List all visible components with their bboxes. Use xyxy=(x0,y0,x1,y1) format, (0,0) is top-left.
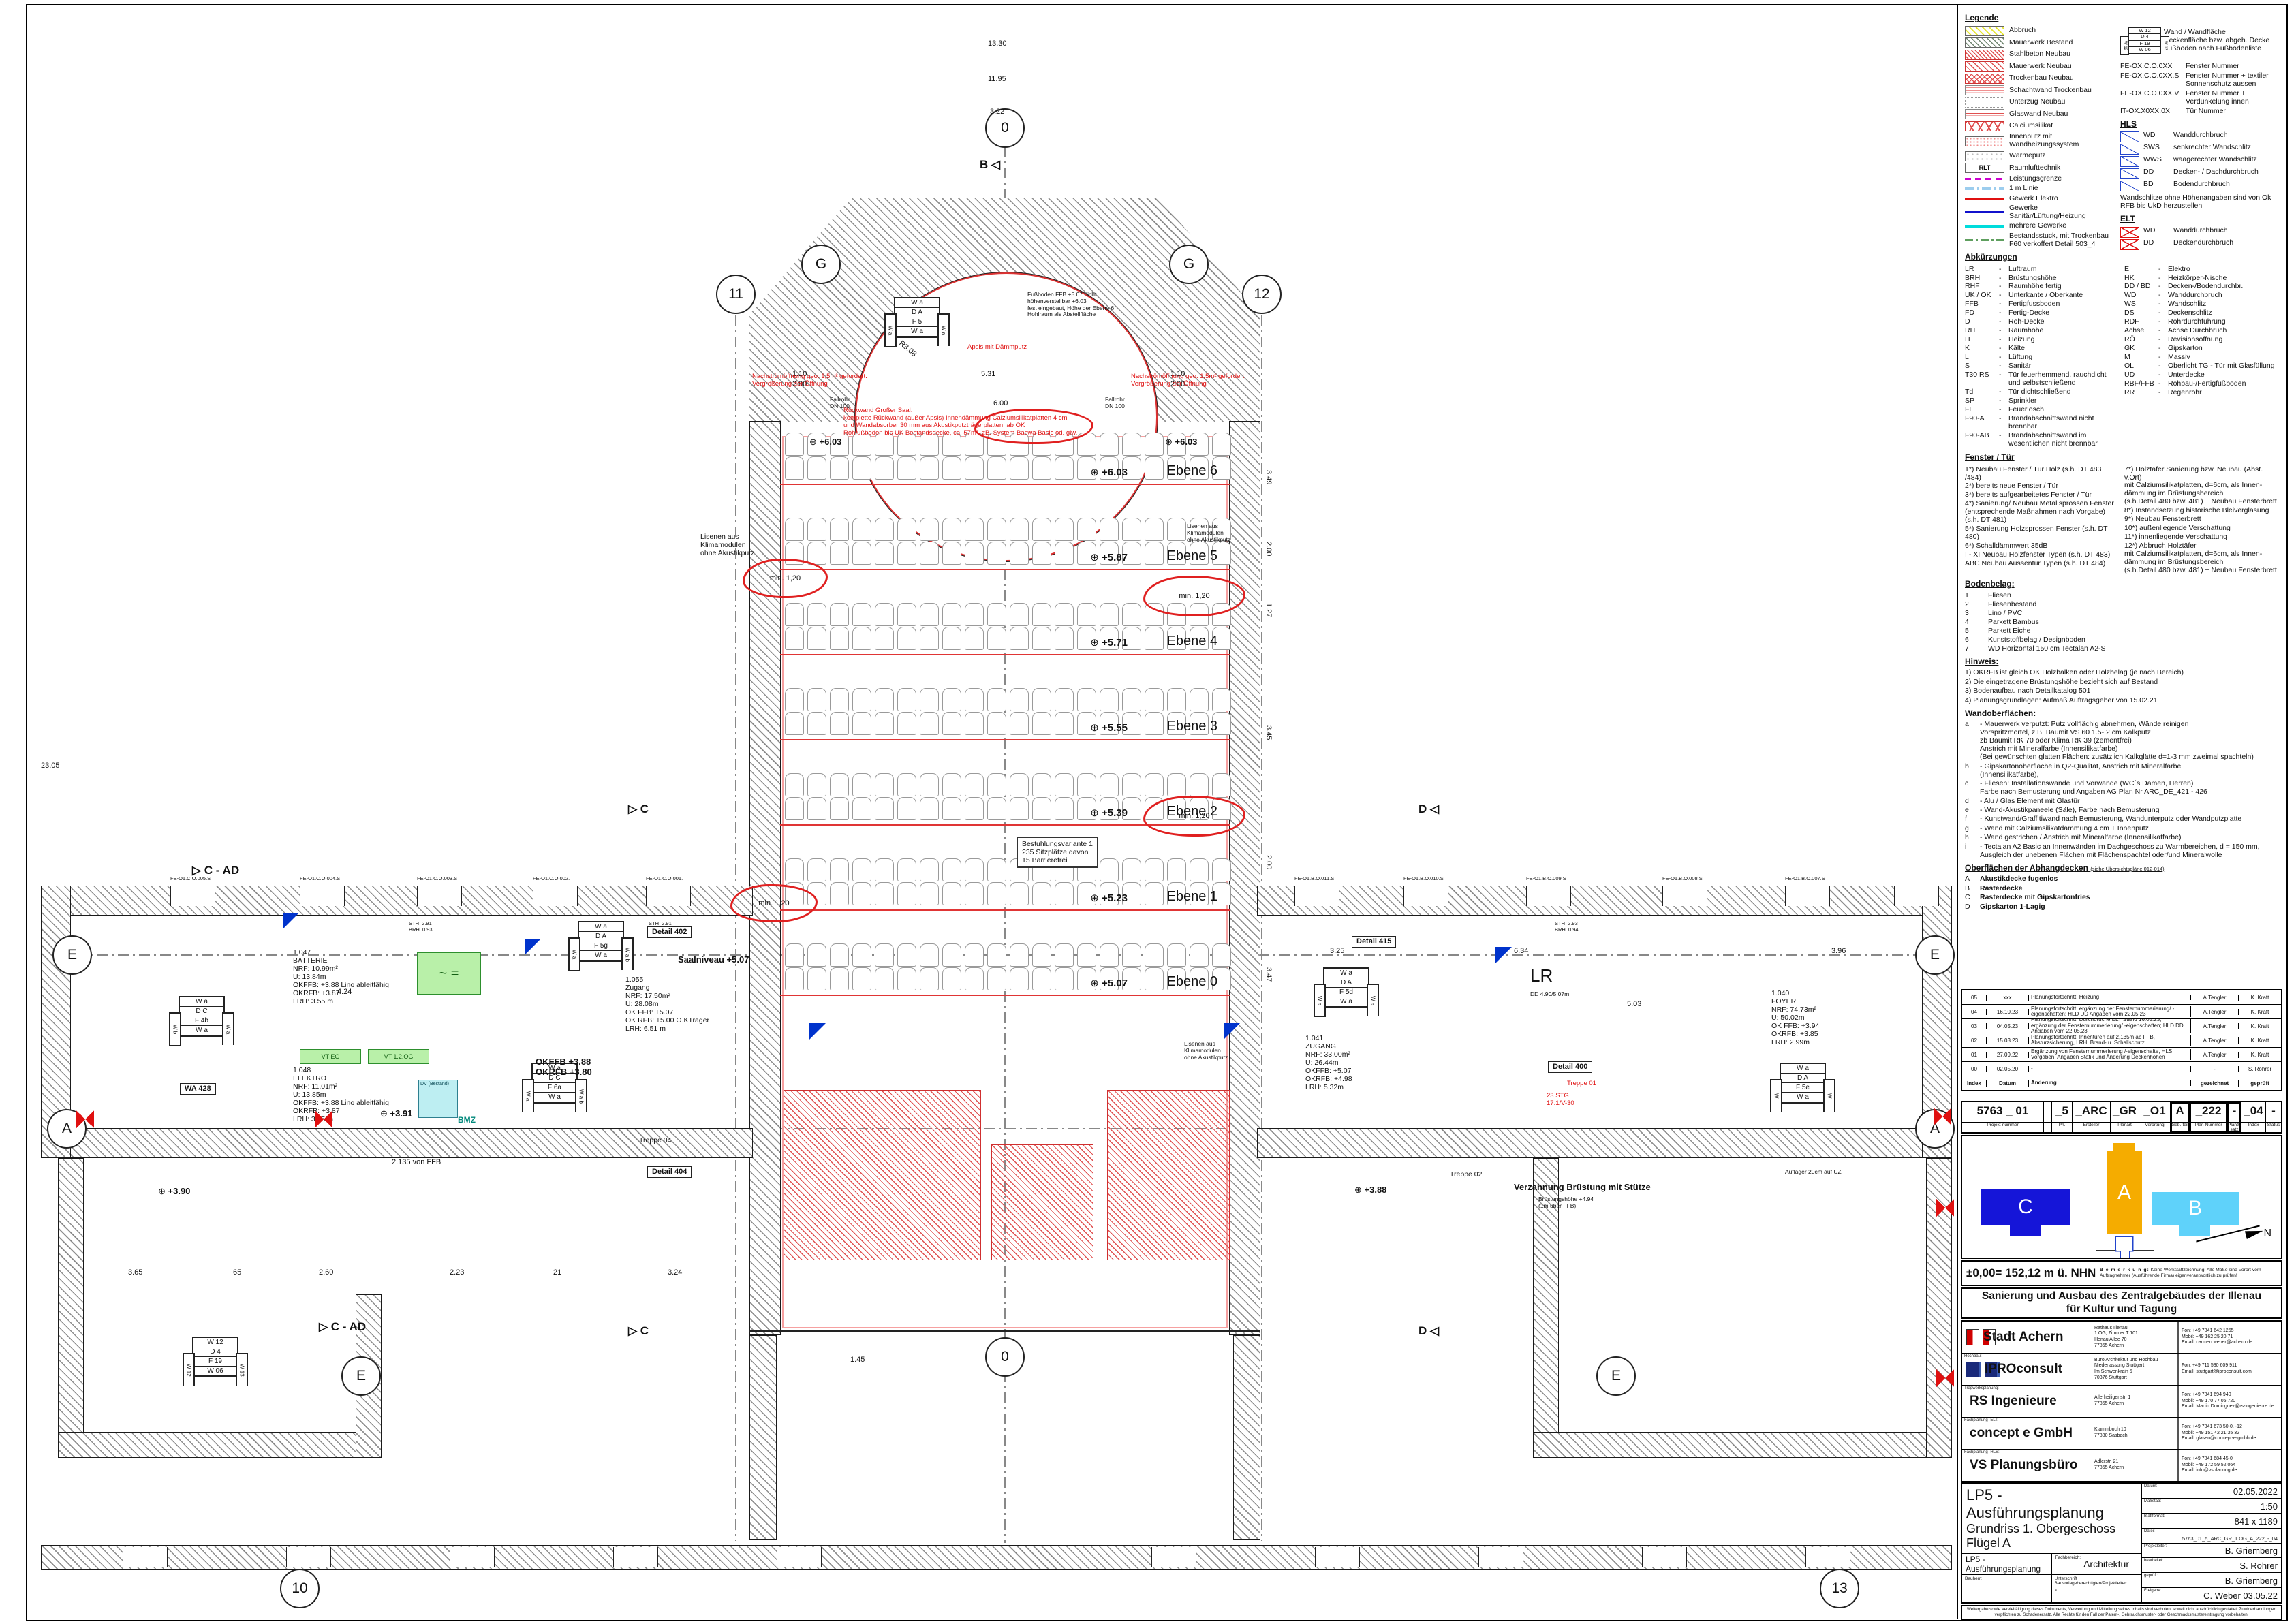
abbrev-dash xyxy=(2158,292,2168,300)
hinweis-title: Hinweis: xyxy=(1965,657,2278,667)
abbrev-row: BRH Brüstungshöhe xyxy=(1965,275,2119,283)
abbrev-dash xyxy=(2158,380,2168,388)
elt-key: DD xyxy=(2143,239,2173,250)
wandoberflaeche-value: - Wand-Akustikpaneele (Säle), Farbe nach… xyxy=(1980,807,2159,815)
seat xyxy=(875,797,894,820)
seat xyxy=(1010,712,1029,735)
seat xyxy=(987,603,1006,626)
seat xyxy=(807,603,826,626)
abbrev-value: Rohbau-/Fertigfußboden xyxy=(2168,380,2246,388)
plan-annotation xyxy=(315,1110,332,1128)
seat xyxy=(965,518,984,541)
seat xyxy=(1055,603,1074,626)
plan-annotation: Lisenen aus Klimamodulen ohne Akustikput… xyxy=(1184,1041,1228,1061)
plan-number-label: Planart xyxy=(2111,1122,2139,1132)
tag-wall: W a xyxy=(180,997,223,1007)
abbrev-value: Deckenschlitz xyxy=(2168,309,2212,317)
abbrev-dash xyxy=(1999,309,2008,317)
level-line xyxy=(780,739,1230,740)
legend-item-label: Wärmeputz xyxy=(2009,152,2046,160)
seat xyxy=(897,858,916,881)
seat xyxy=(807,943,826,967)
seat xyxy=(875,882,894,905)
plan-number-value: _GR xyxy=(2111,1102,2139,1122)
seat xyxy=(1055,967,1074,990)
legend-item-label: Leistungsgrenze xyxy=(2009,175,2062,183)
seat xyxy=(1010,943,1029,967)
plan-annotation: Detail 415 xyxy=(1352,936,1396,948)
titleblock-field: bearbeitet: S. Rohrer xyxy=(2142,1558,2281,1573)
revision-change: Ergänzung von Fensternummerierung /-eige… xyxy=(2029,1049,2191,1061)
company-row: Fachplanung -ELT: concept e GmbH Klammbo… xyxy=(1962,1418,2281,1450)
abbrev-dash xyxy=(1999,275,2008,283)
plan-number-cell: - Planzu-satz xyxy=(2228,1102,2241,1132)
abbrev-value: Brandabschnittswand im wesentlichen nich… xyxy=(2008,432,2119,448)
seat xyxy=(1145,858,1164,881)
abbrev-row: UK / OK Unterkante / Oberkante xyxy=(1965,292,2119,300)
bodenbelag-value: WD Horizontal 150 cm Tectalan A2-S xyxy=(1988,645,2106,653)
abbrev-value: Roh-Decke xyxy=(2008,318,2045,326)
bodenbelag-row: 7 WD Horizontal 150 cm Tectalan A2-S xyxy=(1965,645,2278,653)
abbrev-row: Achse Achse Durchbruch xyxy=(2124,327,2278,335)
seat xyxy=(830,627,849,650)
plan-annotation: 6.00 xyxy=(993,399,1008,408)
abbrev-key: WD xyxy=(2124,292,2158,300)
abhangdecke-key: C xyxy=(1965,894,1980,902)
abbrev-row: UD Unterdecke xyxy=(2124,371,2278,379)
legend-item-label: Gewerk Elektro xyxy=(2009,195,2058,203)
abbrev-key: LR xyxy=(1965,266,1999,274)
field-label: Datei: xyxy=(2144,1529,2155,1533)
seat xyxy=(987,858,1006,881)
seat xyxy=(965,773,984,796)
disclaimer: Weitergabe sowie Vervielfältigung dieses… xyxy=(1961,1605,2282,1620)
window-opening xyxy=(450,1547,495,1567)
abbrev-row: FFB Fertigfussboden xyxy=(1965,300,2119,309)
wandoberflaeche-key: i xyxy=(1965,843,1980,860)
revision-date: 27.09.22 xyxy=(1987,1052,2029,1058)
hls-row: SWS senkrechter Wandschlitz xyxy=(2120,144,2282,155)
seat xyxy=(1032,943,1051,967)
abbrev-row: WS Wandschlitz xyxy=(2124,300,2278,309)
fenster-note: 9*) Neubau Fensterbrett xyxy=(2124,516,2278,524)
abbrev-key: S xyxy=(1965,362,1999,371)
window-opening xyxy=(613,1547,658,1567)
titleblock-field: Freigabe: C. Weber 03.05.22 xyxy=(2142,1588,2281,1602)
grid-bubble: 12 xyxy=(1242,275,1282,314)
abhangdecken-list: A Akustikdecke fugenlos B Rasterdecke C … xyxy=(1965,875,2278,911)
seat xyxy=(942,882,961,905)
seat xyxy=(875,967,894,990)
seat xyxy=(1145,627,1164,650)
legend-swatch xyxy=(1965,136,2004,146)
hinweis-item: 4) Planungsgrundlagen: Aufmaß Auftragsge… xyxy=(1965,697,2278,705)
field-label: Projektleiter: xyxy=(2144,1544,2167,1548)
plan-annotation: 3.45 xyxy=(1264,725,1273,740)
drawing-sheet: +6.03 Ebene 6 +5.87 Ebene 5 +5.71 Ebene … xyxy=(0,0,2296,1624)
seat xyxy=(1100,433,1119,456)
fenster-tuer-right: 7*) Holztäfer Sanierung bzw. Neubau (Abs… xyxy=(2124,465,2278,576)
legend-items: Abbruch Mauerwerk Bestand Stahlbeton Neu… xyxy=(1965,26,2113,249)
revision-drawn: A.Tengler xyxy=(2191,995,2239,1001)
abbrev-value: Revisionsöffnung xyxy=(2168,336,2222,344)
revision-change: Planungsfortschritt: ergänzung der Fenst… xyxy=(2029,1006,2191,1018)
seat xyxy=(1032,882,1051,905)
seat xyxy=(830,456,849,480)
seat xyxy=(852,542,871,565)
plan-number-label: Ersteller xyxy=(2073,1122,2110,1132)
seat xyxy=(1032,603,1051,626)
seat xyxy=(807,773,826,796)
seat xyxy=(1010,882,1029,905)
tag-wall-left: W b xyxy=(169,1012,181,1046)
legend-swatch xyxy=(1965,121,2004,131)
plan-annotation: D ◁ xyxy=(1418,802,1439,816)
level-label: Ebene 5 xyxy=(1166,548,1217,564)
titleblock-drawing-title: Grundriss 1. Obergeschoss xyxy=(1966,1522,2137,1536)
seat xyxy=(942,943,961,967)
plan-annotation: DV (Bestand) xyxy=(418,1080,458,1118)
abbrev-dash xyxy=(1999,371,2008,388)
tag-wall-right: W a xyxy=(1367,984,1379,1016)
seat xyxy=(1212,688,1231,711)
company-name: concept e GmbH xyxy=(1970,1426,2073,1441)
seat xyxy=(1167,688,1186,711)
legend-tag-wall-bottom: W 06 xyxy=(2129,47,2160,54)
company-contact: Fon: +49 7841 642 1255 Mobil: +49 162 25… xyxy=(2177,1322,2281,1353)
seat xyxy=(1010,797,1029,820)
seat xyxy=(807,858,826,881)
hls-key: DD xyxy=(2143,168,2173,179)
legend-item-label: 1 m Linie xyxy=(2009,185,2038,193)
seat xyxy=(852,773,871,796)
plan-annotation: B ◁ xyxy=(980,158,1000,172)
keyplan-entrance-arrow xyxy=(2116,1237,2132,1251)
fenster-note: 1*) Neubau Fenster / Tür Holz (s.h. DT 4… xyxy=(1965,466,2119,482)
plan-number-label: Index xyxy=(2241,1122,2265,1132)
seat xyxy=(1122,688,1141,711)
legend-item-label: Schachtwand Trockenbau xyxy=(2009,87,2092,95)
plan-annotation: Fallrohr DN 100 xyxy=(1105,396,1125,410)
plan-annotation: 2.135 von FFB xyxy=(392,1158,441,1167)
revision-cloud: min. 1,20 xyxy=(743,559,828,598)
company-address: Klammboch 10 77880 Sasbach xyxy=(2094,1418,2177,1449)
plan-annotation: Apsis mit Dämmputz xyxy=(967,344,1027,352)
plan-annotation: 2.00 xyxy=(1264,855,1273,869)
abbrev-dash xyxy=(2158,309,2168,317)
legend-item: Bestandsstuck, mit Trockenbau F60 verkof… xyxy=(1965,232,2113,249)
abbrev-row: FL Feuerlösch xyxy=(1965,406,2119,414)
plan-number-strip: 5763 _ 01 Projekt-nummer _5 Ph. _ARC Ers… xyxy=(1961,1101,2282,1134)
elt-symbol xyxy=(2120,227,2139,238)
legend-item-label: Unterzug Neubau xyxy=(2009,98,2065,106)
seat xyxy=(830,603,849,626)
bodenbelag-value: Lino / PVC xyxy=(1988,610,2022,618)
abbrev-dash xyxy=(1999,432,2008,448)
abhangdecke-value: Akustikdecke fugenlos xyxy=(1980,875,2058,884)
fachbereich-label: Fachbereich: xyxy=(2055,1554,2081,1560)
plan-annotation: +3.91 xyxy=(380,1109,412,1119)
company-address: Rathaus Illenau 1.OG, Zimmer T 101 Illen… xyxy=(2094,1322,2177,1353)
seat xyxy=(965,712,984,735)
abbrev-row: RHF Raumhöhe fertig xyxy=(1965,283,2119,291)
abbrev-key: DS xyxy=(2124,309,2158,317)
tag-wall-right: W a xyxy=(222,1012,234,1045)
seat xyxy=(1010,688,1029,711)
abbrev-dash xyxy=(1999,388,2008,396)
abbrev-value: Tür dichtschließend xyxy=(2008,388,2071,396)
axis-12 xyxy=(1261,294,1262,1541)
signature-cell: Unterschrift Bauvorlageberechtigten/Proj… xyxy=(2052,1575,2141,1602)
revision-checked: K. Kraft xyxy=(2239,1052,2281,1058)
plan-annotation: FE-O1.C.O.003.S xyxy=(417,876,457,882)
seat xyxy=(942,797,961,820)
plan-annotation: 1.040 FOYER NRF: 74.73m² U: 50.02m OK FF… xyxy=(1771,989,1819,1046)
seat xyxy=(1100,518,1119,541)
seat xyxy=(942,627,961,650)
abbrev-key: HK xyxy=(2124,275,2158,283)
legend-code-row: IT-OX.X0XX.0X Tür Nummer xyxy=(2120,108,2282,116)
window-opening xyxy=(1785,886,1830,906)
window-opening xyxy=(170,886,215,906)
revision-table: 05 xxx Planungsfortschritt: Heizung A.Te… xyxy=(1961,989,2282,1091)
legend-swatch xyxy=(1965,85,2004,95)
legend-swatch xyxy=(1965,211,2004,213)
grid-bubble: E xyxy=(341,1356,381,1396)
bodenbelag-row: 3 Lino / PVC xyxy=(1965,610,2278,618)
abbrev-dash xyxy=(2158,345,2168,353)
window-code-desc: Fenster Nummer xyxy=(2186,63,2239,71)
project-title-line1: Sanierung und Ausbau des Zentralgebäudes… xyxy=(1982,1290,2261,1303)
plan-number-cell: _O1 Verortung xyxy=(2139,1102,2171,1132)
revision-date: 04.05.23 xyxy=(1987,1023,2029,1029)
wandoberflaeche-value: - Alu / Glas Element mit Glastür xyxy=(1980,798,2079,806)
abbrev-key: FL xyxy=(1965,406,1999,414)
abbrev-left: LR Luftraum BRH Brüstungshöhe RHF Raumh xyxy=(1965,265,2119,449)
revision-date: 16.10.23 xyxy=(1987,1009,2029,1015)
plan-number-value: _222 xyxy=(2190,1102,2227,1122)
revision-row: 03 04.05.23 Planungsfortschritt: Durchbr… xyxy=(1962,1019,2281,1033)
hls-desc: waagerechter Wandschlitz xyxy=(2173,156,2257,167)
abbrev-row: RR Regenrohr xyxy=(2124,389,2278,397)
window-opening xyxy=(1805,1547,1850,1567)
seat xyxy=(1055,797,1074,820)
revision-checked: K. Kraft xyxy=(2239,1037,2281,1044)
fenster-note: I - XI Neubau Holzfenster Typen (s.h. DT… xyxy=(1965,551,2119,559)
hls-list: WD Wanddurchbruch SWS senkrechter Wandsc… xyxy=(2120,131,2282,191)
legend-item-label: Raumlufttechnik xyxy=(2009,164,2060,172)
window-code-desc: Fenster Nummer + Verdunkelung innen xyxy=(2186,90,2282,106)
tag-wall: W a xyxy=(1781,1064,1825,1074)
field-value: 1:50 xyxy=(2261,1501,2278,1512)
plan-annotation xyxy=(76,1110,94,1128)
plan-number-label: Geb.-teil xyxy=(2171,1122,2189,1132)
tag-wall-left: W a xyxy=(1314,984,1326,1017)
wandoberflaeche-row: f - Kunstwand/Graffitiwand nach Bemuster… xyxy=(1965,815,2278,824)
seat xyxy=(942,603,961,626)
window-opening xyxy=(646,886,691,906)
legend-item: RLT Raumlufttechnik xyxy=(1965,163,2113,173)
plan-number-value: A xyxy=(2171,1102,2189,1122)
hls-desc: Bodendurchbruch xyxy=(2173,181,2230,191)
company-role: Hochbau: xyxy=(1964,1354,1982,1358)
abhangdecke-value: Rasterdecke xyxy=(1980,885,2022,893)
wandoberflaeche-key: f xyxy=(1965,815,1980,824)
plan-annotation: FE-O1.C.O.005.S xyxy=(170,876,211,882)
abhangdecke-row: A Akustikdecke fugenlos xyxy=(1965,875,2278,884)
abbrev-value: Raumhöhe fertig xyxy=(2008,283,2062,291)
plan-annotation: WA 428 xyxy=(180,1083,216,1095)
seat xyxy=(965,797,984,820)
seat xyxy=(1212,858,1231,881)
legend-swatch xyxy=(1965,239,2004,241)
revision-checked: K. Kraft xyxy=(2239,995,2281,1001)
legend-code-row: FE-OX.C.O.0XX Fenster Nummer xyxy=(2120,63,2282,71)
legend-item-label: mehrere Gewerke xyxy=(2009,222,2066,230)
tag-floor: F 5g xyxy=(579,941,623,951)
wandoberflaeche-value: - Mauerwerk verputzt: Putz vollflächig a… xyxy=(1980,721,2254,762)
window-opening xyxy=(1662,886,1707,906)
abbrev-value: Heizkörper-Nische xyxy=(2168,275,2227,283)
lower-wall-left xyxy=(749,1335,777,1540)
abbrev-row: WD Wanddurchbruch xyxy=(2124,292,2278,300)
tag-floor: F 5e xyxy=(1781,1083,1825,1093)
plan-annotation: Treppe 01 xyxy=(1567,1080,1596,1088)
tag-wall: W 12 xyxy=(193,1338,237,1347)
tag-wall-bottom: W a xyxy=(895,327,939,337)
bodenbelag-value: Kunststoffbelag / Designboden xyxy=(1988,636,2085,644)
bodenbelag-key: 7 xyxy=(1965,645,1988,653)
elt-row: DD Deckendurchbruch xyxy=(2120,239,2282,250)
window-opening xyxy=(1478,1547,1523,1567)
company-logo-icon xyxy=(1966,1329,1979,1345)
tag-deck: D C xyxy=(180,1007,223,1016)
tag-deck: D A xyxy=(895,308,939,317)
revision-row: 00 02.05.20 - - S. Rohrer xyxy=(1962,1062,2281,1076)
project-title-line2: für Kultur und Tagung xyxy=(2066,1303,2177,1316)
titleblock-field: Datei: 5763_01_5_ARC_GR_1.OG_A_222_-_04 xyxy=(2142,1529,2281,1544)
titleblock-phase-title: LP5 - Ausführungsplanung xyxy=(1966,1486,2137,1522)
plan-annotation: FE-O1.C.O.001. xyxy=(646,876,683,882)
hls-key: WD xyxy=(2143,131,2173,142)
tag-wall: W a xyxy=(579,922,623,932)
titleblock-field: Datum: 02.05.2022 xyxy=(2142,1484,2281,1499)
seat xyxy=(807,688,826,711)
abbrev-value: Wandschlitz xyxy=(2168,300,2206,309)
seat xyxy=(852,943,871,967)
legend-item-label: Gewerke Sanitär/Lüftung/Heizung xyxy=(2009,204,2113,221)
plan-annotation xyxy=(1934,1108,1951,1125)
tag-wall-bottom: W a xyxy=(579,951,623,961)
tag-deck: D A xyxy=(1781,1074,1825,1083)
seat xyxy=(1032,627,1051,650)
abbrev-row: RBF/FFB Rohbau-/Fertigfußboden xyxy=(2124,380,2278,388)
seat xyxy=(1100,773,1119,796)
tag-floor: F 5 xyxy=(895,317,939,327)
abbrev-row: M Massiv xyxy=(2124,354,2278,362)
seat xyxy=(785,797,804,820)
seat xyxy=(942,456,961,480)
abbrev-key: FFB xyxy=(1965,300,1999,309)
window-opening xyxy=(1894,886,1939,906)
legend-panel: Legende Abbruch Mauerwerk Bestand xyxy=(1961,7,2282,986)
tag-wall: W a xyxy=(1324,969,1368,978)
plan-annotation: 3.25 xyxy=(1330,947,1344,956)
plan-annotation: +3.90 xyxy=(158,1187,190,1197)
seat xyxy=(1077,603,1096,626)
abbrev-value: Massiv xyxy=(2168,354,2190,362)
revision-date: xxx xyxy=(1987,995,2029,1001)
legend-item: Mauerwerk Bestand xyxy=(1965,37,2113,48)
plan-annotation: Nachströmöffnung geo. 1,5m² gefordert. V… xyxy=(752,373,867,388)
bodenbelag-value: Parkett Eiche xyxy=(1988,627,2030,636)
company-name: Stadt Achern xyxy=(1983,1329,1996,1345)
seat xyxy=(1032,773,1051,796)
plan-annotation: ▷ C xyxy=(628,802,649,816)
abbrev-value: Fertig-Decke xyxy=(2008,309,2049,317)
seat xyxy=(807,967,826,990)
wandoberflaeche-row: a - Mauerwerk verputzt: Putz vollflächig… xyxy=(1965,721,2278,762)
fenster-note: 3*) bereits aufgearbeitetes Fenster / Tü… xyxy=(1965,491,2119,499)
seat xyxy=(1055,943,1074,967)
wandoberflaechen-title: Wandoberflächen: xyxy=(1965,709,2278,719)
hls-key: WWS xyxy=(2143,156,2173,167)
plan-annotation: 3.65 xyxy=(128,1268,142,1277)
seat xyxy=(897,943,916,967)
elt-desc: Deckendurchbruch xyxy=(2173,239,2233,250)
abbrev-dash xyxy=(2158,283,2168,291)
bodenbelag-value: Parkett Bambus xyxy=(1988,619,2039,627)
bodenbelag-row: 5 Parkett Eiche xyxy=(1965,627,2278,636)
hls-row: DD Decken- / Dachdurchbruch xyxy=(2120,168,2282,179)
revision-row: 02 15.03.23 Planungsfortschritt: Innentü… xyxy=(1962,1033,2281,1048)
plan-annotation: 6.34 xyxy=(1514,947,1528,956)
abbrev-value: Oberlicht TG - Tür mit Glasfüllung xyxy=(2168,362,2275,371)
plan-annotation: 23 STG 17.1/V-30 xyxy=(1547,1093,1574,1108)
fachbereich-value: Architektur xyxy=(2083,1559,2129,1570)
seat xyxy=(852,797,871,820)
hls-symbol xyxy=(2120,144,2139,155)
abbrev-key: E xyxy=(2124,266,2158,274)
revision-index: Index xyxy=(1962,1080,1987,1087)
seat xyxy=(897,603,916,626)
keyplan-wing-c: C xyxy=(1981,1189,2070,1225)
titleblock-field: Projektleiter: B. Griemberg xyxy=(2142,1544,2281,1559)
revision-checked: S. Rohrer xyxy=(2239,1066,2281,1072)
revision-checked: geprüft xyxy=(2239,1080,2281,1087)
abbrev-title: Abkürzungen xyxy=(1965,253,2278,262)
plan-number-cell: _04 Index xyxy=(2241,1102,2266,1132)
plan-annotation: 1.055 Zugang NRF: 17.50m² U: 28.08m OK F… xyxy=(625,975,709,1033)
seat xyxy=(1010,773,1029,796)
company-name: IPROconsult xyxy=(1985,1362,2000,1377)
revision-row: Index Datum Änderung gezeichnet geprüft xyxy=(1962,1076,2281,1090)
window-opening xyxy=(1151,1547,1196,1567)
seat xyxy=(920,858,939,881)
seat xyxy=(1190,858,1209,881)
company-row: Fachplanung -HLS: VS Planungsbüro Adlers… xyxy=(1962,1450,2281,1481)
north-label: N xyxy=(2263,1228,2271,1240)
bodenbelag-key: 2 xyxy=(1965,601,1988,609)
field-value: 841 x 1189 xyxy=(2235,1516,2278,1527)
plan-annotation: 5.03 xyxy=(1627,1000,1641,1009)
seat xyxy=(897,773,916,796)
seat xyxy=(1055,688,1074,711)
company-contact: Fon: +49 7841 694 940 Mobil: +49 170 77 … xyxy=(2177,1386,2281,1417)
elt-row: WD Wanddurchbruch xyxy=(2120,227,2282,238)
plan-number-value xyxy=(2044,1102,2051,1122)
legend-item-label: Trockenbau Neubau xyxy=(2009,74,2074,82)
